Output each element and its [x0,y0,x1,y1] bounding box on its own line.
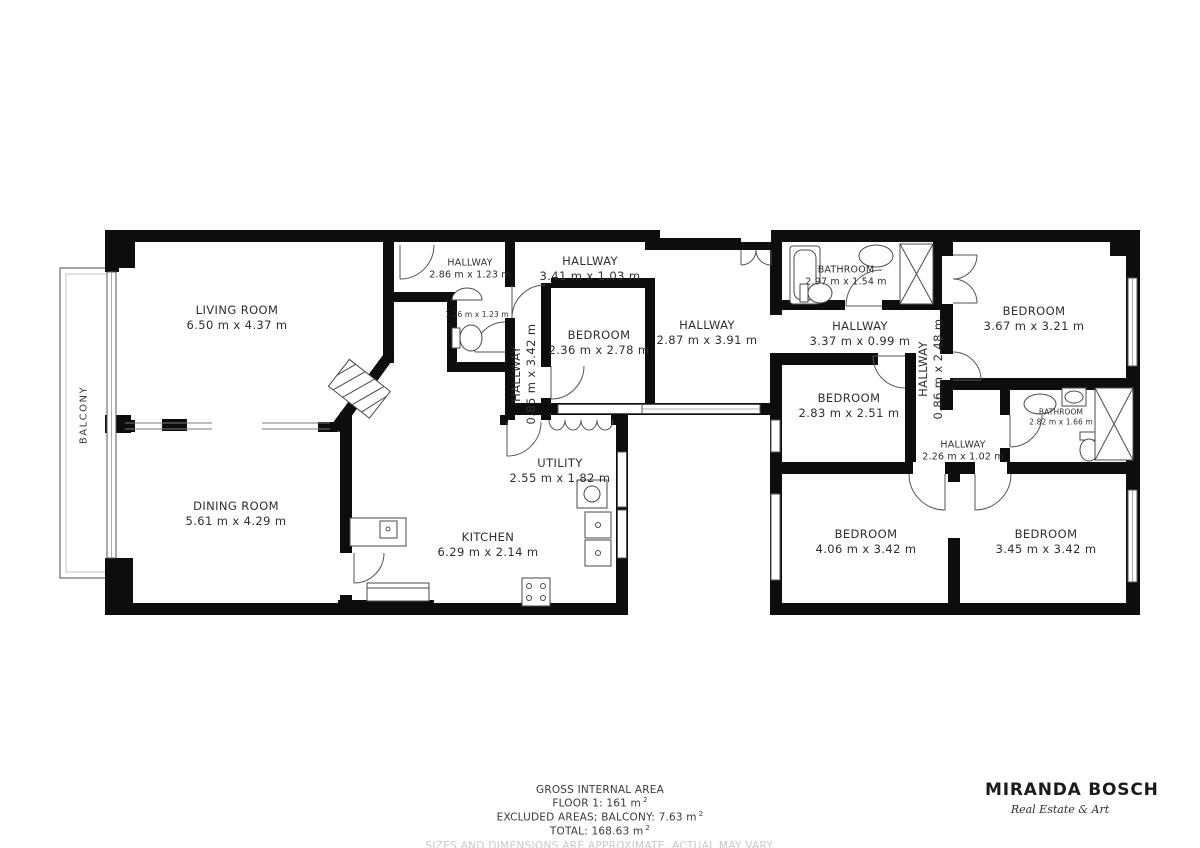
floorplan-drawing [0,0,1200,848]
room-label-hallway-287: HALLWAY 2.87 m x 3.91 m [656,318,757,348]
room-label-hallway-086: HALLWAY 0.86 m x 2.48 m [916,318,946,419]
room-label-hallway-085: HALLWAY 0.85 m x 3.42 m [509,323,539,424]
room-label-hallway-341: HALLWAY 3.41 m x 1.03 m [539,254,640,284]
room-label-kitchen: KITCHEN 6.29 m x 2.14 m [437,530,538,560]
brand-logo: MIRANDA BOSCH Real Estate & Art [985,780,1135,816]
balcony-label: BALCONY [79,386,90,444]
partition-lines [125,423,330,429]
disclaimer-text: SIZES AND DIMENSIONS ARE APPROXIMATE, AC… [0,840,1200,848]
room-label-bedroom-406: BEDROOM 4.06 m x 3.42 m [815,527,916,557]
room-label-bedroom-345: BEDROOM 3.45 m x 3.42 m [995,527,1096,557]
total-area-line: TOTAL: 168.63 m2 [0,824,1200,838]
shower-top [900,244,933,304]
room-label-utility: UTILITY 2.55 m x 1.82 m [509,456,610,486]
room-label-bathroom-282: BATHROOM 2.82 m x 1.66 m [1029,407,1093,427]
brand-name: MIRANDA BOSCH [985,780,1135,800]
room-label-bathroom-297: BATHROOM 2.97 m x 1.54 m [805,265,887,290]
room-label-hallway-226: HALLWAY 2.26 m x 1.02 m [922,440,1004,465]
room-label-living: LIVING ROOM 6.50 m x 4.37 m [186,303,287,333]
room-label-dining: DINING ROOM 5.61 m x 4.29 m [185,499,286,529]
room-label-small-bathroom: 1.26 m x 1.23 m [445,310,509,320]
room-label-hallway-337: HALLWAY 3.37 m x 0.99 m [809,319,910,349]
room-label-bedroom-367: BEDROOM 3.67 m x 3.21 m [983,304,1084,334]
brand-tagline: Real Estate & Art [985,803,1135,816]
dining-bench [367,583,429,601]
room-label-bedroom-236: BEDROOM 2.36 m x 2.78 m [548,328,649,358]
room-label-bedroom-283: BEDROOM 2.83 m x 2.51 m [798,391,899,421]
room-label-hallway-286: HALLWAY 2.86 m x 1.23 m [429,258,511,283]
floorplan-page: LIVING ROOM 6.50 m x 4.37 m DINING ROOM … [0,0,1200,848]
